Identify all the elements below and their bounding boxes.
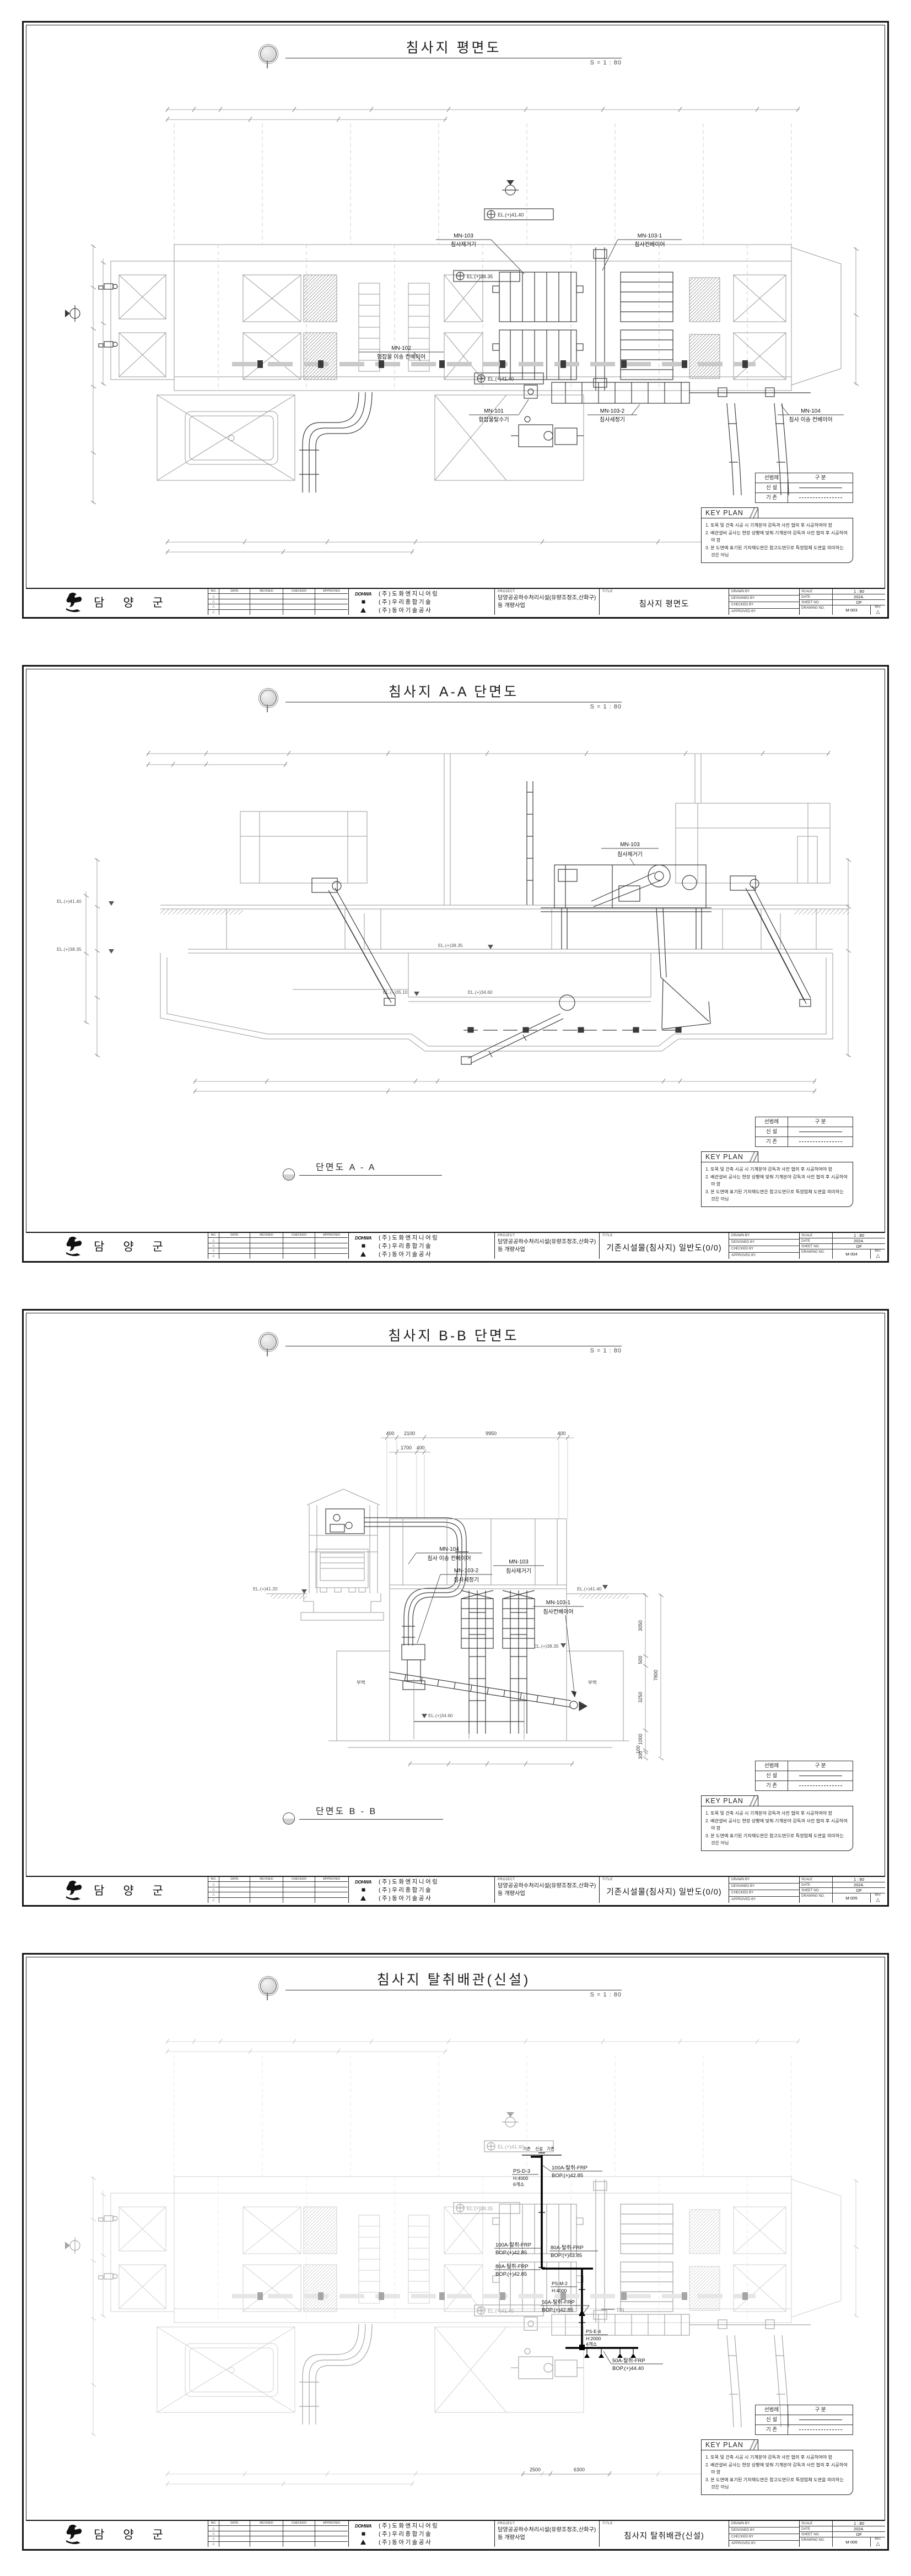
label-ps-m2: PS-M-2 H:4000 bbox=[551, 2281, 577, 2293]
label-80a-b: 80A-탈취-FRP BOP.(+)42.85 bbox=[494, 2263, 541, 2277]
svg-text:침사제거기: 침사제거기 bbox=[617, 851, 643, 858]
svg-text:기존: 기존 bbox=[547, 2146, 554, 2151]
svg-text:MN-104: MN-104 bbox=[801, 408, 821, 414]
meta-cell: SCALE1 : 80 DATE2024. SHEET NO.OF DRAWIN… bbox=[799, 1877, 885, 1903]
svg-text:EL.(+)38.35: EL.(+)38.35 bbox=[57, 946, 82, 952]
svg-text:50A-탈취-FRP: 50A-탈취-FRP bbox=[612, 2357, 645, 2364]
svg-text:80A-탈취-FRP: 80A-탈취-FRP bbox=[551, 2244, 584, 2251]
drawing-set-canvas: 침사지 평면도 S = 1 : 80 bbox=[0, 0, 911, 2576]
buttress-label: 부벽 bbox=[588, 1680, 597, 1685]
label-80a-a: 80A-탈취-FRP BOP.(+)43.85 bbox=[549, 2244, 598, 2259]
svg-text:300: 300 bbox=[638, 1751, 643, 1759]
svg-text:EL.(+)34.60: EL.(+)34.60 bbox=[428, 1713, 453, 1718]
existing-plan-faded bbox=[65, 2039, 859, 2486]
svg-text:BOP.(+)44.40: BOP.(+)44.40 bbox=[612, 2366, 644, 2372]
section-mark-icon bbox=[502, 180, 519, 195]
svg-text:MN-103-2: MN-103-2 bbox=[600, 408, 625, 414]
donga-logo-icon bbox=[360, 2540, 366, 2545]
svg-text:4개소: 4개소 bbox=[586, 2341, 597, 2347]
title-cell: TITLE 침사지 탈취배관(신설) bbox=[599, 2521, 729, 2547]
company-name: (주)우리종합기술 bbox=[379, 598, 432, 606]
section-aa-drawing: EL.(+)41.40 EL.(+)38.35 EL.(+)38.35 EL.(… bbox=[28, 671, 883, 1235]
callout-mn-103: MN-103 침사제거기 bbox=[493, 1559, 544, 1574]
svg-text:400: 400 bbox=[557, 1431, 565, 1436]
svg-text:6개소: 6개소 bbox=[513, 2182, 525, 2187]
key-plan-box: KEY PLAN 1. 토목 및 건축 시공 시 기계분야 감독과 사전 협의 … bbox=[701, 2439, 853, 2495]
svg-text:3050: 3050 bbox=[638, 1620, 643, 1631]
solid-line-sample bbox=[799, 488, 842, 488]
dn-label: DN bbox=[617, 2307, 624, 2313]
svg-text:BOP.(+)43.85: BOP.(+)43.85 bbox=[551, 2253, 582, 2259]
svg-text:7800: 7800 bbox=[653, 1670, 659, 1681]
elevation-label: EL.(+)41.40 bbox=[475, 373, 543, 384]
section-caption-text: 단면도 B - B bbox=[299, 1804, 443, 1820]
key-plan-note: 2. 배관설비 공사는 현장 상황에 맞춰 기계분야 감독과 사전 협의 후 시… bbox=[705, 529, 849, 544]
sheet-2-section-aa: 침사지 A-A 단면도 S = 1 : 80 bbox=[22, 665, 889, 1263]
section-caption-text: 단면도 A - A bbox=[299, 1160, 442, 1176]
revision-table: NO.DATEREVISEDCHECKEDAPPROVED △ △ △ △ bbox=[208, 589, 348, 615]
company-cell: DOHWA(주)도화엔지니어링 (주)우리종합기술 (주)동아기술공사 bbox=[348, 589, 494, 615]
svg-text:EL.(+)41.40: EL.(+)41.40 bbox=[488, 376, 514, 382]
top-dimensions: 400 2100 9950 400 1700 400 bbox=[381, 1431, 574, 1519]
svg-text:EL.(+)38.35: EL.(+)38.35 bbox=[467, 274, 493, 279]
solid-line-sample bbox=[799, 1132, 842, 1132]
callout-mn-103-1: MN-103-1 침사컨베이어 bbox=[602, 233, 682, 270]
callout-mn-103-2: MN-103-2 침사세정기 bbox=[587, 404, 640, 423]
key-plan-box: KEY PLAN 1. 토목 및 건축 시공 시 기계분야 감독과 사전 협의 … bbox=[701, 1795, 853, 1851]
donga-logo-icon bbox=[360, 1252, 366, 1257]
callout-mn-103-2: MN-103-2 침사세정기 bbox=[417, 1568, 492, 1643]
chimney bbox=[527, 781, 533, 905]
dashed-line-sample bbox=[799, 1141, 842, 1142]
drawing-number: M-003 bbox=[833, 605, 870, 615]
svg-text:침사세정기: 침사세정기 bbox=[600, 416, 625, 423]
callout-mn-102: MN-102 협잡물 이송 컨베이어 bbox=[359, 345, 444, 361]
drawing-number: M-006 bbox=[833, 2537, 870, 2547]
superstructures bbox=[240, 754, 830, 905]
drawing-title: 기존시설물(침사지) 일반도(0/0) bbox=[602, 1886, 726, 1897]
dashed-line-sample bbox=[799, 2429, 842, 2430]
donga-logo-icon bbox=[360, 608, 366, 613]
damyang-logo-icon bbox=[63, 1880, 85, 1901]
dashed-line-sample bbox=[799, 497, 842, 498]
key-plan-box: KEY PLAN 1. 토목 및 건축 시공 시 기계분야 감독과 사전 협의 … bbox=[701, 507, 853, 563]
damyang-logo-icon bbox=[63, 1236, 85, 1257]
elevation-label: EL.(+)41.20 bbox=[253, 1586, 278, 1592]
svg-text:침사 이송 컨베이어: 침사 이송 컨베이어 bbox=[427, 1555, 471, 1562]
piping-drawing: 기존 신설 기존 PS-D-3 H:4000 6개소 100A-탈취-FRP B… bbox=[28, 1959, 883, 2523]
svg-text:침사제거기: 침사제거기 bbox=[451, 241, 476, 248]
svg-text:500: 500 bbox=[638, 1655, 643, 1664]
callout-mn-104: MN-104 침사 이송 컨베이어 bbox=[778, 405, 844, 423]
dohwa-logo: DOHWA bbox=[351, 591, 375, 597]
svg-text:EL.(+)34.60: EL.(+)34.60 bbox=[468, 989, 493, 995]
project-cell: PROJECT 담양공공하수처리시설(유량조정조,산화구)등 개량사업 bbox=[494, 589, 599, 615]
woori-logo-icon bbox=[361, 1887, 366, 1892]
buttress-label: 부벽 bbox=[357, 1680, 365, 1685]
project-cell: PROJECT 담양공공하수처리시설(유량조정조,산화구)등 개량사업 bbox=[494, 2521, 599, 2547]
bottom-dims: 2500 6300 bbox=[521, 2467, 611, 2476]
woori-logo-icon bbox=[361, 1243, 366, 1248]
damyang-logo-icon bbox=[63, 592, 85, 613]
callout-mn-104: MN-104 침사 이송 컨베이어 bbox=[408, 1546, 482, 1564]
svg-text:기존: 기존 bbox=[523, 2146, 531, 2151]
woori-logo-icon bbox=[361, 599, 366, 604]
svg-text:PS-E-4: PS-E-4 bbox=[586, 2329, 601, 2334]
damyang-logo-icon bbox=[63, 2524, 85, 2545]
solid-line-sample bbox=[799, 1776, 842, 1776]
station-machinery bbox=[326, 1509, 364, 1534]
svg-text:H:2000: H:2000 bbox=[586, 2336, 601, 2341]
callout-mn-101: MN-101 협잡물탈수기 bbox=[469, 399, 529, 423]
key-plan-box: KEY PLAN 1. 토목 및 건축 시공 시 기계분야 감독과 사전 협의 … bbox=[701, 1151, 853, 1207]
svg-text:50A-탈취-FRP: 50A-탈취-FRP bbox=[542, 2299, 575, 2306]
title-block: 담 양 군 NO.DATEREVISEDCHECKEDAPPROVED △ △ … bbox=[26, 1876, 885, 1903]
signature-cell: DRAWN BYDESIGNED BYCHECKED BYAPPROVED BY bbox=[729, 1233, 799, 1259]
signature-cell: DRAWN BYDESIGNED BYCHECKED BYAPPROVED BY bbox=[729, 1877, 799, 1903]
line-legend: 선범례구 분 신 설 기 존 bbox=[755, 1117, 853, 1147]
svg-text:EL.(+)41.40: EL.(+)41.40 bbox=[577, 1586, 602, 1592]
svg-text:MN-103: MN-103 bbox=[509, 1559, 529, 1565]
svg-text:400: 400 bbox=[386, 1431, 394, 1436]
plan-base-geometry: EL.(+)41.40 EL.(+)38.35 EL.(+)41.40 bbox=[65, 107, 859, 554]
svg-text:침사제거기: 침사제거기 bbox=[506, 1568, 531, 1574]
key-plan-note: 3. 본 도면에 표기된 기자재도면은 참고도면으로 특정업체 도면을 의미하는… bbox=[705, 544, 849, 559]
svg-text:협잡물탈수기: 협잡물탈수기 bbox=[478, 416, 509, 423]
section-caption-icon bbox=[283, 1812, 295, 1825]
svg-text:EL.(+)38.35: EL.(+)38.35 bbox=[438, 943, 463, 948]
svg-text:침사세정기: 침사세정기 bbox=[454, 1577, 479, 1583]
project-cell: PROJECT 담양공공하수처리시설(유량조정조,산화구)등 개량사업 bbox=[494, 1233, 599, 1259]
legend-new: 신 설 bbox=[756, 483, 788, 493]
plan-drawing: EL.(+)41.40 EL.(+)38.35 EL.(+)41.40 MN-1… bbox=[28, 27, 883, 591]
svg-text:PS-D-3: PS-D-3 bbox=[513, 2168, 530, 2174]
label-ps-e4: PS-E-4 H:2000 4개소 bbox=[585, 2329, 608, 2347]
drawing-title: 기존시설물(침사지) 일반도(0/0) bbox=[602, 1242, 726, 1253]
svg-text:MN-104: MN-104 bbox=[439, 1546, 459, 1552]
grit-conveyor bbox=[389, 1672, 587, 1711]
drawing-title: 침사지 탈취배관(신설) bbox=[602, 2530, 726, 2541]
svg-text:MN-103: MN-103 bbox=[454, 233, 473, 239]
svg-text:MN-102: MN-102 bbox=[391, 345, 411, 351]
label-ps-d3: PS-D-3 H:4000 6개소 bbox=[512, 2168, 538, 2187]
sheet-4-deodor-piping: 침사지 탈취배관(신설) S = 1 : 80 기존 신설 기존 PS-D-3 … bbox=[22, 1953, 889, 2551]
svg-text:EL.(+)38.35: EL.(+)38.35 bbox=[534, 1643, 559, 1649]
svg-text:MN-103-2: MN-103-2 bbox=[454, 1568, 479, 1574]
svg-text:MN-101: MN-101 bbox=[484, 408, 504, 414]
company-name: (주)동아기술공사 bbox=[379, 606, 432, 614]
title-cell: TITLE 기존시설물(침사지) 일반도(0/0) bbox=[599, 1233, 729, 1259]
svg-text:2500: 2500 bbox=[530, 2467, 541, 2472]
project-name: 담양공공하수처리시설(유량조정조,산화구)등 개량사업 bbox=[498, 594, 596, 610]
structure-section bbox=[160, 905, 849, 1051]
solid-line-sample bbox=[799, 2420, 842, 2420]
svg-text:EL.(+)41.40: EL.(+)41.40 bbox=[57, 899, 82, 904]
line-legend: 선범례구 분 신 설 기 존 bbox=[755, 2405, 853, 2435]
line-legend: 선범례구 분 신 설 기 존 bbox=[755, 473, 853, 503]
revision-table: NO.DATEREVISEDCHECKEDAPPROVED △ △ △ △ bbox=[208, 1233, 348, 1259]
section-bb-drawing: 400 2100 9950 400 1700 400 bbox=[28, 1315, 883, 1879]
section-mark-icon bbox=[65, 305, 80, 322]
drawing-title: 침사지 평면도 bbox=[602, 598, 726, 609]
client-cell: 담 양 군 bbox=[26, 1877, 208, 1903]
drawing-number: M-004 bbox=[833, 1249, 870, 1259]
svg-text:신설: 신설 bbox=[535, 2146, 543, 2151]
svg-text:EL.(+)35.10: EL.(+)35.10 bbox=[383, 989, 408, 995]
svg-text:6300: 6300 bbox=[574, 2467, 585, 2472]
signature-cell: DRAWN BYDESIGNED BYCHECKED BYAPPROVED BY bbox=[729, 589, 799, 615]
section-caption: 단면도 A - A bbox=[283, 1160, 442, 1176]
elevation-flags: EL.(+)41.40 EL.(+)38.35 EL.(+)38.35 EL.(… bbox=[57, 899, 493, 996]
title-cell: TITLE 기존시설물(침사지) 일반도(0/0) bbox=[599, 1877, 729, 1903]
svg-text:H:4000: H:4000 bbox=[552, 2288, 567, 2293]
svg-text:EL.(+)41.40: EL.(+)41.40 bbox=[498, 212, 524, 218]
key-plan-note: 1. 토목 및 건축 시공 시 기계분야 감독과 사전 협의 후 시공하여야 함 bbox=[705, 522, 849, 529]
project-cell: PROJECT 담양공공하수처리시설(유량조정조,산화구)등 개량사업 bbox=[494, 1877, 599, 1903]
company-name: (주)도화엔지니어링 bbox=[379, 589, 439, 598]
svg-text:100A-탈취-FRP: 100A-탈취-FRP bbox=[552, 2164, 587, 2171]
key-plan-title: KEY PLAN bbox=[701, 507, 758, 518]
company-cell: DOHWA(주)도화엔지니어링 (주)우리종합기술 (주)동아기술공사 bbox=[348, 2521, 494, 2547]
svg-text:BOP.(+)42.85: BOP.(+)42.85 bbox=[542, 2307, 573, 2313]
legend-existing: 기 존 bbox=[756, 493, 788, 502]
callout-mn-103: MN-103 침사제거기 bbox=[601, 842, 659, 865]
legend-header-left: 선범례 bbox=[756, 473, 788, 483]
sheet-1-plan: 침사지 평면도 S = 1 : 80 bbox=[22, 21, 889, 619]
svg-text:1700: 1700 bbox=[401, 1445, 412, 1451]
screen-channels bbox=[414, 1590, 535, 1734]
svg-text:침사컨베이어: 침사컨베이어 bbox=[543, 1609, 573, 1615]
svg-text:협잡물 이송 컨베이어: 협잡물 이송 컨베이어 bbox=[377, 353, 425, 360]
drawing-number: M-005 bbox=[833, 1893, 870, 1903]
client-cell: 담 양 군 bbox=[26, 1233, 208, 1259]
plan-callouts: MN-103 침사제거기 MN-103-1 침사컨베이어 MN-102 협잡물 … bbox=[359, 233, 844, 423]
client-cell: 담 양 군 bbox=[26, 589, 208, 615]
svg-text:9950: 9950 bbox=[486, 1431, 497, 1436]
title-block: 담 양 군 NO.DATEREVISEDCHECKEDAPPROVED △ △ … bbox=[26, 588, 885, 615]
svg-text:침사컨베이어: 침사컨베이어 bbox=[634, 241, 665, 248]
dimension-lines bbox=[84, 751, 851, 1094]
title-cell: TITLE 침사지 평면도 bbox=[599, 589, 729, 615]
revision-table: NO.DATEREVISEDCHECKEDAPPROVED △ △ △ △ bbox=[208, 2521, 348, 2547]
svg-text:3250: 3250 bbox=[638, 1692, 643, 1703]
meta-cell: SCALE1 : 80 DATE2024. SHEET NO.OF DRAWIN… bbox=[799, 589, 885, 615]
section-caption-icon bbox=[283, 1168, 295, 1181]
company-cell: DOHWA(주)도화엔지니어링 (주)우리종합기술 (주)동아기술공사 bbox=[348, 1877, 494, 1903]
signature-cell: DRAWN BYDESIGNED BYCHECKED BYAPPROVED BY bbox=[729, 2521, 799, 2547]
svg-text:BOP.(+)42.85: BOP.(+)42.85 bbox=[495, 2271, 527, 2277]
line-legend: 선범례구 분 신 설 기 존 bbox=[755, 1761, 853, 1791]
svg-text:MN-103-1: MN-103-1 bbox=[546, 1600, 571, 1606]
svg-text:MN-103: MN-103 bbox=[620, 842, 640, 848]
svg-text:MN-103-1: MN-103-1 bbox=[638, 233, 662, 239]
legend-header-right: 구 분 bbox=[788, 473, 853, 483]
sheet-3-section-bb: 침사지 B-B 단면도 S = 1 : 80 400 2100 9950 400… bbox=[22, 1309, 889, 1907]
svg-text:PS-M-2: PS-M-2 bbox=[552, 2281, 568, 2286]
dashed-line-sample bbox=[799, 1785, 842, 1786]
svg-text:400: 400 bbox=[416, 1445, 424, 1451]
svg-text:침사 이송 컨베이어: 침사 이송 컨베이어 bbox=[789, 416, 832, 423]
title-block: 담 양 군 NO.DATEREVISEDCHECKEDAPPROVED △ △ … bbox=[26, 2520, 885, 2547]
client-name: 담 양 군 bbox=[94, 594, 171, 610]
basin-structure bbox=[328, 1519, 645, 1747]
meta-cell: SCALE1 : 80 DATE2024. SHEET NO.OF DRAWIN… bbox=[799, 2521, 885, 2547]
svg-text:BOP.(+)42.85: BOP.(+)42.85 bbox=[552, 2173, 583, 2179]
section-caption: 단면도 B - B bbox=[283, 1804, 443, 1820]
svg-text:BOP.(+)42.85: BOP.(+)42.85 bbox=[495, 2250, 527, 2256]
svg-text:1000: 1000 bbox=[638, 1734, 643, 1745]
svg-text:H:4000: H:4000 bbox=[513, 2175, 529, 2181]
right-dimensions: 3050 500 3250 1000 100 300 7800 bbox=[635, 1594, 664, 1760]
meta-cell: SCALE1 : 80 DATE2024. SHEET NO.OF DRAWIN… bbox=[799, 1233, 885, 1259]
revision-table: NO.DATEREVISEDCHECKEDAPPROVED △ △ △ △ bbox=[208, 1877, 348, 1903]
svg-text:100A-탈취-FRP: 100A-탈취-FRP bbox=[495, 2242, 531, 2248]
pipe-bundle bbox=[364, 1518, 468, 1646]
title-block: 담 양 군 NO.DATEREVISEDCHECKEDAPPROVED △ △ … bbox=[26, 1232, 885, 1259]
donga-logo-icon bbox=[360, 1896, 366, 1901]
woori-logo-icon bbox=[361, 2531, 366, 2536]
callout-mn-103: MN-103 침사제거기 bbox=[436, 233, 524, 274]
company-cell: DOHWA(주)도화엔지니어링 (주)우리종합기술 (주)동아기술공사 bbox=[348, 1233, 494, 1259]
elevation-label: EL.(+)41.40 bbox=[484, 209, 553, 220]
client-cell: 담 양 군 bbox=[26, 2521, 208, 2547]
svg-text:80A-탈취-FRP: 80A-탈취-FRP bbox=[495, 2263, 529, 2270]
svg-text:2100: 2100 bbox=[404, 1431, 415, 1436]
